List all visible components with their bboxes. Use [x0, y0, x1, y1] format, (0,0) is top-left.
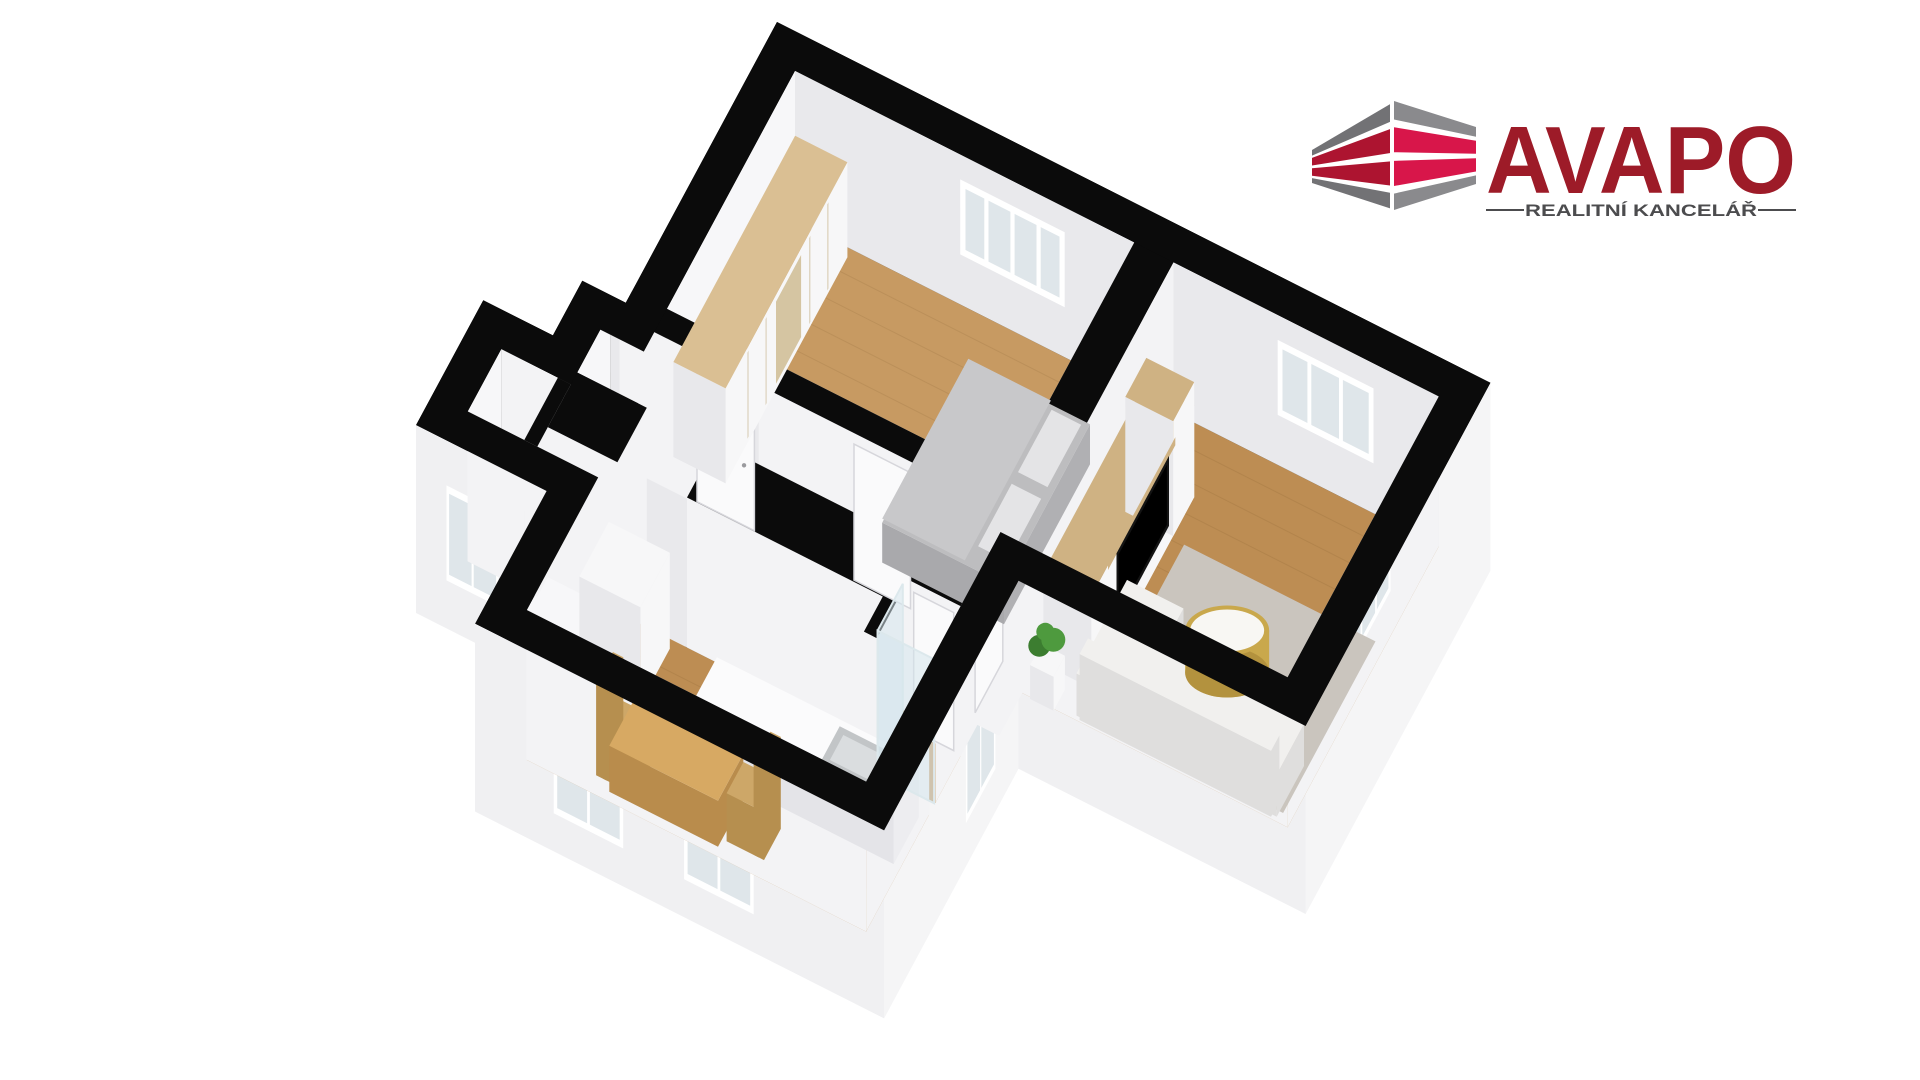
avapo-logo-icon — [1312, 96, 1476, 212]
avapo-logo: AVAPO REALITNÍ KANCELÁŘ — [1312, 96, 1796, 220]
brand-name: AVAPO — [1486, 107, 1796, 214]
brand-tagline: REALITNÍ KANCELÁŘ — [1525, 201, 1757, 220]
floorplan-screenshot: AVAPO REALITNÍ KANCELÁŘ — [0, 0, 1920, 1080]
